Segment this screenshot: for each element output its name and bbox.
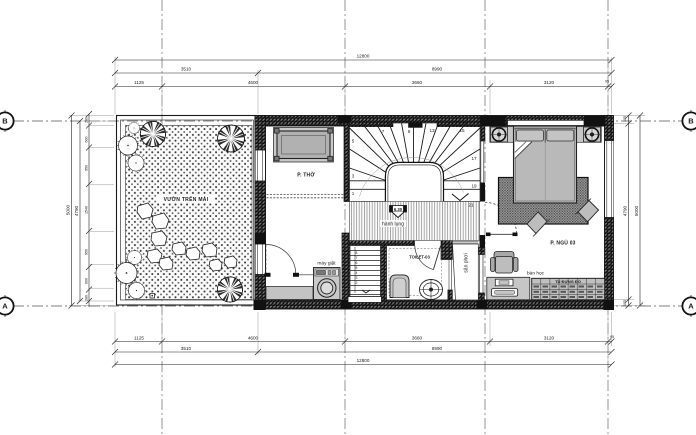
svg-text:7: 7	[382, 129, 385, 134]
svg-text:1: 1	[352, 191, 355, 196]
svg-text:8990: 8990	[432, 346, 443, 351]
svg-text:15: 15	[459, 128, 465, 133]
svg-text:P. NGỦ 03: P. NGỦ 03	[550, 240, 575, 247]
svg-text:21: 21	[468, 203, 474, 208]
svg-text:280: 280	[85, 117, 89, 123]
svg-text:3: 3	[356, 276, 358, 280]
svg-text:950: 950	[85, 165, 89, 171]
svg-text:950: 950	[85, 249, 89, 255]
svg-text:sân phơi: sân phơi	[464, 253, 470, 272]
svg-text:TỦ ĐỰNG ĐỒ: TỦ ĐỰNG ĐỒ	[555, 279, 581, 284]
svg-text:600: 600	[85, 137, 89, 143]
svg-text:P. THỜ: P. THỜ	[297, 171, 315, 179]
svg-text:4790: 4790	[623, 205, 628, 216]
svg-text:B: B	[688, 117, 694, 126]
svg-text:13: 13	[429, 128, 435, 133]
svg-text:105: 105	[623, 300, 627, 306]
svg-text:4600: 4600	[248, 80, 259, 85]
svg-text:19: 19	[471, 184, 477, 189]
svg-text:12800: 12800	[357, 54, 370, 59]
svg-text:hành lụng: hành lụng	[382, 222, 404, 228]
svg-text:B: B	[2, 117, 8, 126]
svg-text:12800: 12800	[357, 358, 370, 363]
svg-text:3120: 3120	[544, 336, 555, 341]
svg-text:máy giặt: máy giặt	[317, 261, 336, 267]
svg-text:17: 17	[471, 156, 477, 161]
svg-text:280: 280	[85, 295, 89, 301]
svg-text:7: 7	[356, 256, 358, 260]
svg-text:95: 95	[610, 335, 614, 339]
svg-text:5000: 5000	[634, 205, 639, 216]
svg-text:95: 95	[605, 80, 609, 84]
svg-text:bàn học: bàn học	[527, 271, 545, 277]
svg-text:A: A	[688, 302, 694, 311]
svg-text:1125: 1125	[134, 80, 144, 85]
svg-text:6.30: 6.30	[394, 207, 403, 212]
svg-text:2: 2	[356, 281, 358, 285]
svg-text:4790: 4790	[74, 205, 79, 216]
svg-text:5000: 5000	[66, 204, 71, 215]
svg-text:4: 4	[356, 271, 358, 275]
svg-text:6: 6	[356, 261, 358, 265]
svg-text:3: 3	[352, 174, 355, 179]
svg-text:5: 5	[356, 266, 358, 270]
svg-text:A: A	[2, 302, 8, 311]
svg-text:600: 600	[85, 278, 89, 284]
svg-text:3120: 3120	[544, 80, 555, 85]
svg-text:TOILET-03: TOILET-03	[409, 255, 430, 260]
svg-text:9: 9	[408, 129, 411, 134]
svg-text:3660: 3660	[412, 80, 423, 85]
svg-text:4600: 4600	[248, 336, 259, 341]
svg-text:8990: 8990	[432, 67, 443, 72]
svg-text:3510: 3510	[181, 67, 192, 72]
svg-text:1125: 1125	[134, 336, 144, 341]
svg-text:3660: 3660	[412, 336, 423, 341]
svg-text:1540: 1540	[85, 206, 89, 214]
svg-text:8: 8	[356, 251, 358, 255]
svg-text:105: 105	[623, 116, 627, 122]
svg-text:VƯỜN TRÊN MÁI: VƯỜN TRÊN MÁI	[164, 195, 209, 203]
svg-text:5: 5	[352, 139, 355, 144]
svg-text:3510: 3510	[181, 346, 192, 351]
